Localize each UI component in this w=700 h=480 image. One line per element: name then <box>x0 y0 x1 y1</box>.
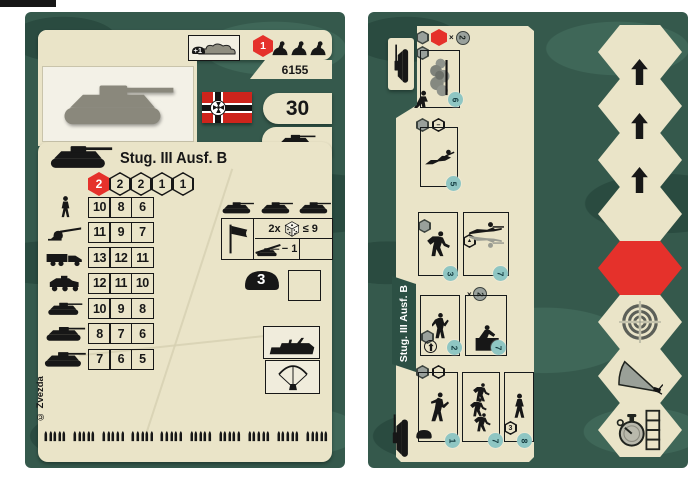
order-assault-badge: 1 <box>445 433 460 448</box>
ammo-bullet-icon <box>262 426 266 447</box>
attack-values: 1086 <box>88 197 154 218</box>
soldier-crawl-icon <box>422 147 456 166</box>
infantry-icon <box>59 196 72 218</box>
attack-cell: 8 <box>88 323 111 344</box>
field-of-fire-icon <box>617 355 663 397</box>
soldier-kneel-icon <box>412 90 431 109</box>
ammo-bullet-icon <box>291 426 295 447</box>
attack-table-row: 1197 <box>42 222 154 242</box>
strength-hex-value: 2 <box>96 177 103 191</box>
attack-cell: 6 <box>109 349 132 370</box>
order-march-badge: 8 <box>517 433 532 448</box>
ammo-bullet-icon <box>53 426 57 447</box>
attack-cell: 13 <box>88 247 111 268</box>
ammo-bullet-icon <box>257 426 261 447</box>
ammo-bullet-icon <box>78 426 82 447</box>
ammo-bullet-icon <box>145 426 149 447</box>
iron-cross-icon <box>213 102 224 113</box>
attack-cell: 6 <box>131 323 154 344</box>
ammo-strip-base <box>44 445 328 446</box>
attack-cell: 7 <box>88 349 111 370</box>
ammo-group <box>102 426 124 447</box>
ammo-bullet-icon <box>194 426 198 447</box>
up-arrow-icon <box>631 167 648 193</box>
ammo-group <box>306 426 328 447</box>
attack-values: 1197 <box>88 222 154 243</box>
soldier-grenade-icon <box>427 391 449 423</box>
heavy-tank-icon <box>42 350 88 368</box>
order-climb-badge: 2 <box>447 340 462 355</box>
parachute-box <box>265 360 320 394</box>
fire-rule-multiplier: 2x <box>268 223 280 235</box>
climb-note-circle <box>424 340 437 353</box>
ammo-bullet-icon <box>286 426 290 447</box>
order-crawl-badge: 5 <box>446 176 461 191</box>
attack-table-row: 1098 <box>42 299 154 319</box>
ammo-bullet-icon <box>49 426 53 447</box>
attack-target <box>42 196 88 218</box>
ammo-bullet-icon <box>150 426 154 447</box>
armor-helmet: 3 <box>240 266 284 298</box>
order-advance-badge: 7 <box>488 433 503 448</box>
attack-cell: 11 <box>131 247 154 268</box>
ammo-group <box>190 426 212 447</box>
attack-cell: 12 <box>109 247 132 268</box>
fire-rule-modifier: − 1 <box>282 243 298 255</box>
ammo-group <box>277 426 299 447</box>
up-arrow-icon <box>631 59 648 85</box>
strength-hex: 2 <box>130 172 152 196</box>
attack-cell: 9 <box>109 298 132 319</box>
unit-chip <box>388 38 414 90</box>
fire-rule-box: 2x ≤ 9 − 1 <box>221 218 333 260</box>
ammo-bullet-icon <box>306 426 310 447</box>
attack-cell: 7 <box>109 323 132 344</box>
enemy-tanks-row <box>221 200 332 215</box>
attack-values: 765 <box>88 349 154 370</box>
ammo-bullet-icon <box>199 426 203 447</box>
soldier-prone-icon <box>468 221 504 235</box>
ammo-bullet-icon <box>277 426 281 447</box>
ammo-group <box>160 426 182 447</box>
loss-box <box>288 270 321 301</box>
strength-hex: 1 <box>151 172 173 196</box>
destroyed-tank-icon <box>256 244 280 255</box>
ammo-bullet-icon <box>203 426 207 447</box>
smoke-multiplier-circle: 2 <box>456 31 470 45</box>
ammo-bullet-icon <box>141 426 145 447</box>
ammo-strip <box>44 424 328 447</box>
order-march-box <box>504 372 534 442</box>
strength-hex: 2 <box>109 172 131 196</box>
ammo-bullet-icon <box>58 426 62 447</box>
terrain-hex-icon <box>416 31 429 45</box>
strength-hex: 2 <box>88 172 110 196</box>
ammo-bullet-icon <box>82 426 86 447</box>
attack-table-row: 131211 <box>42 248 154 268</box>
attack-cell: 5 <box>131 349 154 370</box>
unit-photo-tank <box>58 80 178 128</box>
soldier-prone-reflection <box>468 235 504 249</box>
attack-values: 131211 <box>88 247 154 268</box>
ammo-bullet-icon <box>190 426 194 447</box>
ammo-bullet-icon <box>87 426 91 447</box>
ammo-bullet-icon <box>116 426 120 447</box>
helmet-mini-icon <box>414 428 434 441</box>
unit-title-tank-icon <box>45 143 117 170</box>
left-card-panel: 6155 +1 1 <box>25 12 345 468</box>
fire-rule-empty-cell <box>299 239 332 259</box>
landing-ship-box <box>263 326 320 359</box>
squad-hex-value: 1 <box>260 40 266 52</box>
advance-squad-icon <box>469 382 493 432</box>
ammo-bullet-icon <box>295 426 299 447</box>
attack-cell: 10 <box>88 197 111 218</box>
attack-target <box>42 249 88 267</box>
stopwatch-track-icon <box>615 408 665 452</box>
strength-hex-value: 2 <box>138 177 145 191</box>
unit-title-vertical: Stug. III Ausf. B <box>398 285 410 362</box>
ammo-bullet-icon <box>174 426 178 447</box>
ammo-bullet-icon <box>102 426 106 447</box>
ammo-bullet-icon <box>91 426 95 447</box>
strength-hex-value: 1 <box>159 177 166 191</box>
fire-rule-threshold: ≤ 9 <box>303 223 318 235</box>
ammo-bullet-icon <box>281 426 285 447</box>
card-scan-page: 6155 +1 1 <box>0 0 700 480</box>
ammo-bullet-icon <box>232 426 236 447</box>
landing-ship-icon <box>268 335 316 358</box>
fire-rule-flag-cell <box>222 219 254 259</box>
attack-values: 876 <box>88 323 154 344</box>
ammo-bullet-icon <box>73 426 77 447</box>
strength-hex-value: 1 <box>180 177 187 191</box>
medium-tank-icon <box>44 325 87 342</box>
attack-cell: 8 <box>131 298 154 319</box>
attack-cell: 8 <box>109 197 132 218</box>
attack-cell: 6 <box>131 197 154 218</box>
enemy-tank-icon <box>260 200 294 215</box>
attack-cell: 10 <box>131 273 154 294</box>
attack-values: 121110 <box>88 273 154 294</box>
armor-value: 3 <box>257 271 265 288</box>
soldier-run-icon <box>426 231 450 257</box>
point-value: 30 <box>286 97 309 121</box>
ammo-bullet-icon <box>62 426 66 447</box>
ammo-bullet-icon <box>266 426 270 447</box>
light-tank-icon <box>46 301 84 316</box>
parachute-icon <box>274 363 312 391</box>
vertical-tank-icon <box>390 412 410 460</box>
ammo-bullet-icon <box>208 426 212 447</box>
ammo-bullet-icon <box>179 426 183 447</box>
attack-target <box>42 224 88 241</box>
ammo-group <box>44 426 66 447</box>
strength-hex-row: 22211 <box>88 172 193 196</box>
halftrack-icon <box>45 274 85 292</box>
product-code-tab: 6155 <box>250 60 332 79</box>
ammo-bullet-icon <box>311 426 315 447</box>
target-hex-icon <box>619 301 661 343</box>
attack-target <box>42 325 88 342</box>
order-obstacle-badge: 7 <box>491 340 506 355</box>
product-code: 6155 <box>274 63 309 77</box>
ammo-bullet-icon <box>252 426 256 447</box>
ammo-bullet-icon <box>131 426 135 447</box>
attack-target <box>42 350 88 368</box>
order-fire-prone-badge: 7 <box>493 266 508 281</box>
fire-rule-bottom: − 1 <box>255 238 332 259</box>
camouflage-bonus-value: +1 <box>194 46 203 55</box>
unit-title-tab: Stug. III Ausf. B <box>392 276 416 372</box>
order-advance-box <box>462 372 500 442</box>
smoke-x-label: × <box>449 33 454 42</box>
attack-cell: 10 <box>88 298 111 319</box>
attack-table-row: 876 <box>42 324 154 344</box>
track-edge-line <box>0 5 56 7</box>
camouflage-bonus-box: +1 <box>188 35 240 61</box>
attack-cell: 9 <box>109 222 132 243</box>
attack-values: 1098 <box>88 298 154 319</box>
strength-hex: 1 <box>172 172 194 196</box>
attack-target <box>42 274 88 292</box>
up-arrow-icon <box>631 113 648 139</box>
soldier-climb-icon <box>432 312 449 340</box>
ammo-bullet-icon <box>111 426 115 447</box>
attack-table-row: 121110 <box>42 273 154 293</box>
crew-figures-icon <box>271 38 327 57</box>
unit-title: Stug. III Ausf. B <box>120 150 227 168</box>
strength-hex-value: 2 <box>117 177 124 191</box>
point-value-box: 30 <box>263 93 332 124</box>
soldier-walk-icon <box>512 393 527 421</box>
ammo-bullet-icon <box>219 426 223 447</box>
ammo-bullet-icon <box>136 426 140 447</box>
copyright-text: © Zvezda <box>35 364 46 422</box>
ammo-bullet-icon <box>121 426 125 447</box>
attack-cell: 11 <box>109 273 132 294</box>
mini-arrow-icon <box>428 343 434 351</box>
flag-icon <box>227 223 249 255</box>
truck-icon <box>45 249 85 267</box>
ammo-bullet-icon <box>170 426 174 447</box>
attack-cell: 7 <box>131 222 154 243</box>
dice-icon <box>284 221 300 237</box>
war-flag-icon <box>202 92 252 123</box>
ammo-group <box>219 426 241 447</box>
ammo-bullet-icon <box>320 426 324 447</box>
order-panel: × 2 6 – 5 <box>396 26 534 462</box>
ammo-bullet-icon <box>324 426 328 447</box>
ammo-group <box>131 426 153 447</box>
attack-table-row: 1086 <box>42 197 154 217</box>
attack-cell: 11 <box>88 222 111 243</box>
enemy-tank-icon <box>298 200 332 215</box>
unit-photo-box <box>42 66 194 142</box>
attack-table: 108611971312111211101098876765 <box>42 197 154 375</box>
ammo-bullet-icon <box>315 426 319 447</box>
unit-chip-tank-icon <box>392 43 410 85</box>
fire-rule-top: 2x ≤ 9 <box>255 219 332 238</box>
ammo-group <box>248 426 270 447</box>
enemy-tank-icon <box>221 200 255 215</box>
attack-table-row: 765 <box>42 349 154 369</box>
ammo-bullet-icon <box>248 426 252 447</box>
attack-target <box>42 301 88 316</box>
ammo-group <box>73 426 95 447</box>
ammo-bullet-icon <box>107 426 111 447</box>
smoke-red-hex-icon <box>431 29 447 46</box>
ammo-bullet-icon <box>160 426 164 447</box>
ammo-bullet-icon <box>44 426 48 447</box>
at-gun-icon <box>46 224 84 241</box>
order-smoke-badge: 6 <box>448 92 463 107</box>
order-run-badge: 3 <box>443 266 458 281</box>
attack-cell: 12 <box>88 273 111 294</box>
order-smoke-header: × 2 <box>416 29 470 46</box>
ammo-bullet-icon <box>165 426 169 447</box>
ammo-bullet-icon <box>237 426 241 447</box>
ammo-bullet-icon <box>228 426 232 447</box>
ammo-bullet-icon <box>223 426 227 447</box>
